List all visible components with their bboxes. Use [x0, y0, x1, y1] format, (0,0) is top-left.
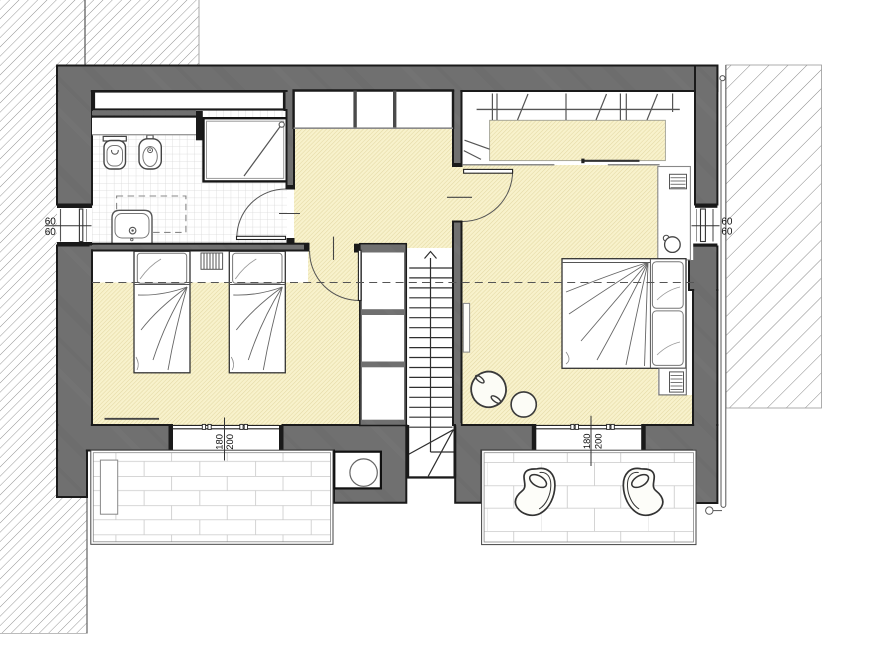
svg-text:60: 60 [721, 227, 733, 238]
svg-text:180: 180 [581, 433, 592, 449]
svg-text:180: 180 [213, 434, 224, 450]
svg-text:60: 60 [45, 227, 57, 238]
svg-text:200: 200 [224, 434, 235, 450]
svg-text:200: 200 [592, 433, 603, 449]
svg-text:60: 60 [45, 216, 57, 227]
